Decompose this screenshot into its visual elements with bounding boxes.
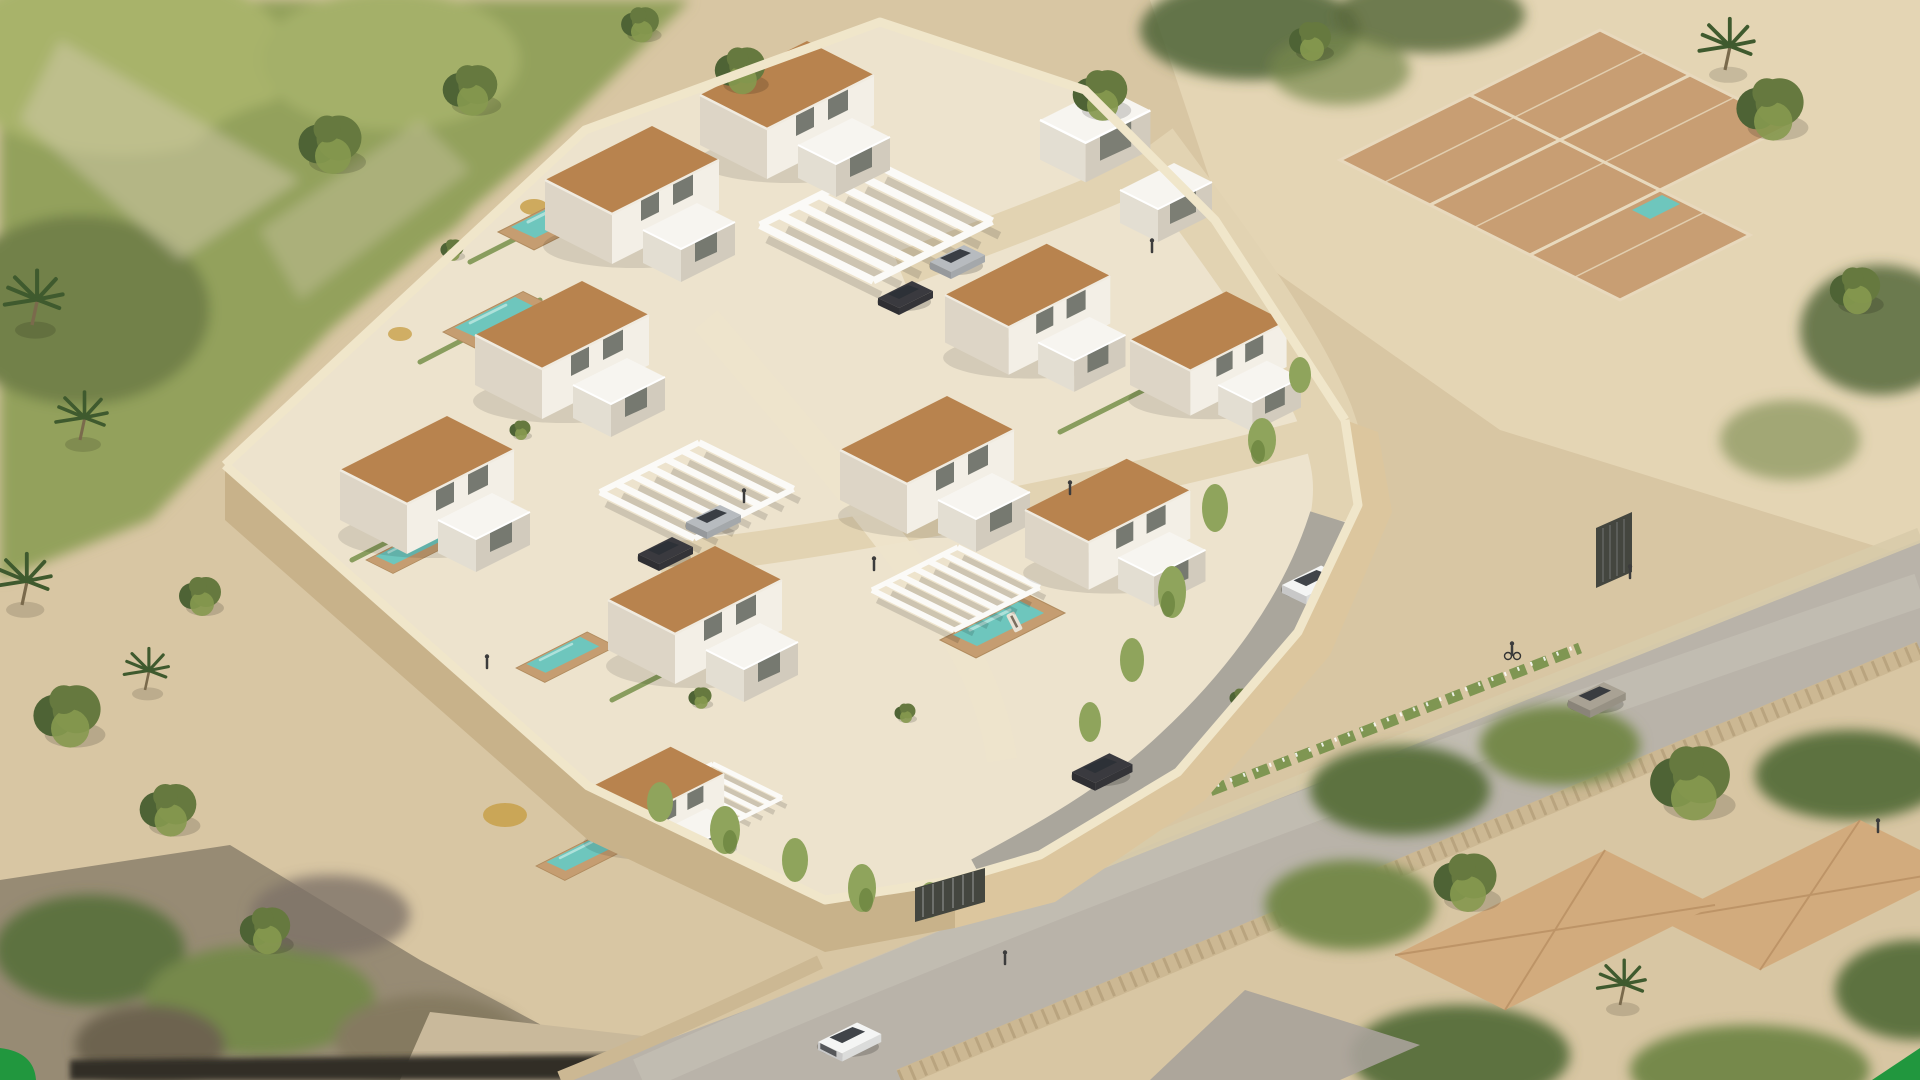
- aerial-render: [0, 0, 1920, 1080]
- golden-shrub: [388, 327, 412, 341]
- golden-shrub: [483, 803, 527, 827]
- aerial-render-figure: Aerial isometric 3D render of a walled r…: [0, 0, 1920, 1080]
